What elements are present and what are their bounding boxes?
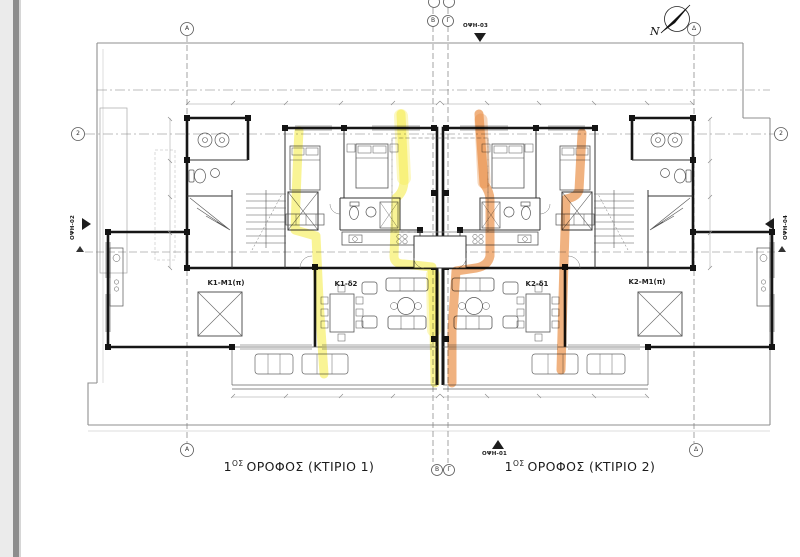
unit-label-k2-m1: Κ2-Μ1(π) xyxy=(615,278,679,286)
scan-edge-band xyxy=(0,0,21,557)
north-label: N xyxy=(650,25,660,38)
grid-bubble-a-top: Α xyxy=(181,23,193,35)
floor-plan-sheet: 1ΟΣΟΡΟΦΟΣ (ΚΤΙΡΙΟ 1) 1ΟΣΟΡΟΦΟΣ (ΚΤΙΡΙΟ 2… xyxy=(0,0,800,557)
grid-bubble-d-bottom: Δ xyxy=(690,444,702,456)
grid-bubble-g-top: Γ xyxy=(442,15,454,27)
elevation-label-left: ΟΨΗ-02 xyxy=(70,215,76,240)
elevation-label-bottom: ΟΨΗ-01 xyxy=(482,451,507,457)
unit-label-k1-m1: Κ1-Μ1(π) xyxy=(194,279,258,287)
grid-bubble-a-bottom: Α xyxy=(181,444,193,456)
grid-bubble-b-top: Β xyxy=(427,15,439,27)
floor-plan-canvas xyxy=(0,0,800,557)
elevation-label-right: ΟΨΗ-04 xyxy=(783,215,789,240)
north-arrow-icon xyxy=(661,5,690,33)
grid-bubble-d-top: Δ xyxy=(688,23,700,35)
floor-title-building-2: 1ΟΣΟΡΟΦΟΣ (ΚΤΙΡΙΟ 2) xyxy=(500,459,660,474)
escape-route-orange-right xyxy=(561,133,582,370)
grid-bubble-b-bottom: Β xyxy=(431,464,443,476)
grid-bubble-g-bottom: Γ xyxy=(443,464,455,476)
elevation-label-top: ΟΨΗ-03 xyxy=(463,23,488,29)
grid-bubble-2-left: 2 xyxy=(72,128,84,140)
unit-label-k2-d1: Κ2-δ1 xyxy=(505,280,569,288)
grid-bubble-2-right: 2 xyxy=(775,128,787,140)
unit-label-k1-d2: Κ1-δ2 xyxy=(314,280,378,288)
floor-title-building-1: 1ΟΣΟΡΟΦΟΣ (ΚΤΙΡΙΟ 1) xyxy=(219,459,379,474)
